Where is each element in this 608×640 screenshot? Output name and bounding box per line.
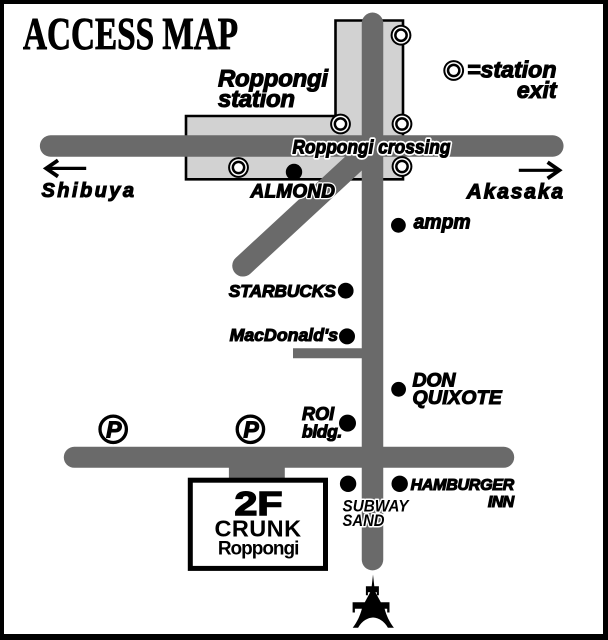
svg-text:bldg.: bldg. <box>302 421 342 441</box>
svg-text:station: station <box>218 86 295 113</box>
svg-text:exit: exit <box>517 77 558 103</box>
svg-text:SAND: SAND <box>343 511 385 530</box>
svg-text:Roppongi: Roppongi <box>218 539 300 560</box>
svg-text:CRUNK: CRUNK <box>215 515 302 541</box>
svg-text:Roppongi crossing: Roppongi crossing <box>293 138 451 159</box>
svg-text:HAMBURGER: HAMBURGER <box>411 477 515 494</box>
svg-text:Akasaka: Akasaka <box>466 181 564 204</box>
svg-text:MacDonald's: MacDonald's <box>230 325 339 345</box>
svg-text:QUIXOTE: QUIXOTE <box>413 387 503 409</box>
svg-text:INN: INN <box>488 494 515 511</box>
svg-text:P: P <box>243 417 259 443</box>
svg-text:STARBUCKS: STARBUCKS <box>229 281 336 301</box>
svg-text:ALMOND: ALMOND <box>250 182 336 203</box>
svg-text:ampm: ampm <box>414 211 471 233</box>
svg-text:P: P <box>106 417 122 443</box>
svg-text:ACCESS MAP: ACCESS MAP <box>23 9 238 59</box>
